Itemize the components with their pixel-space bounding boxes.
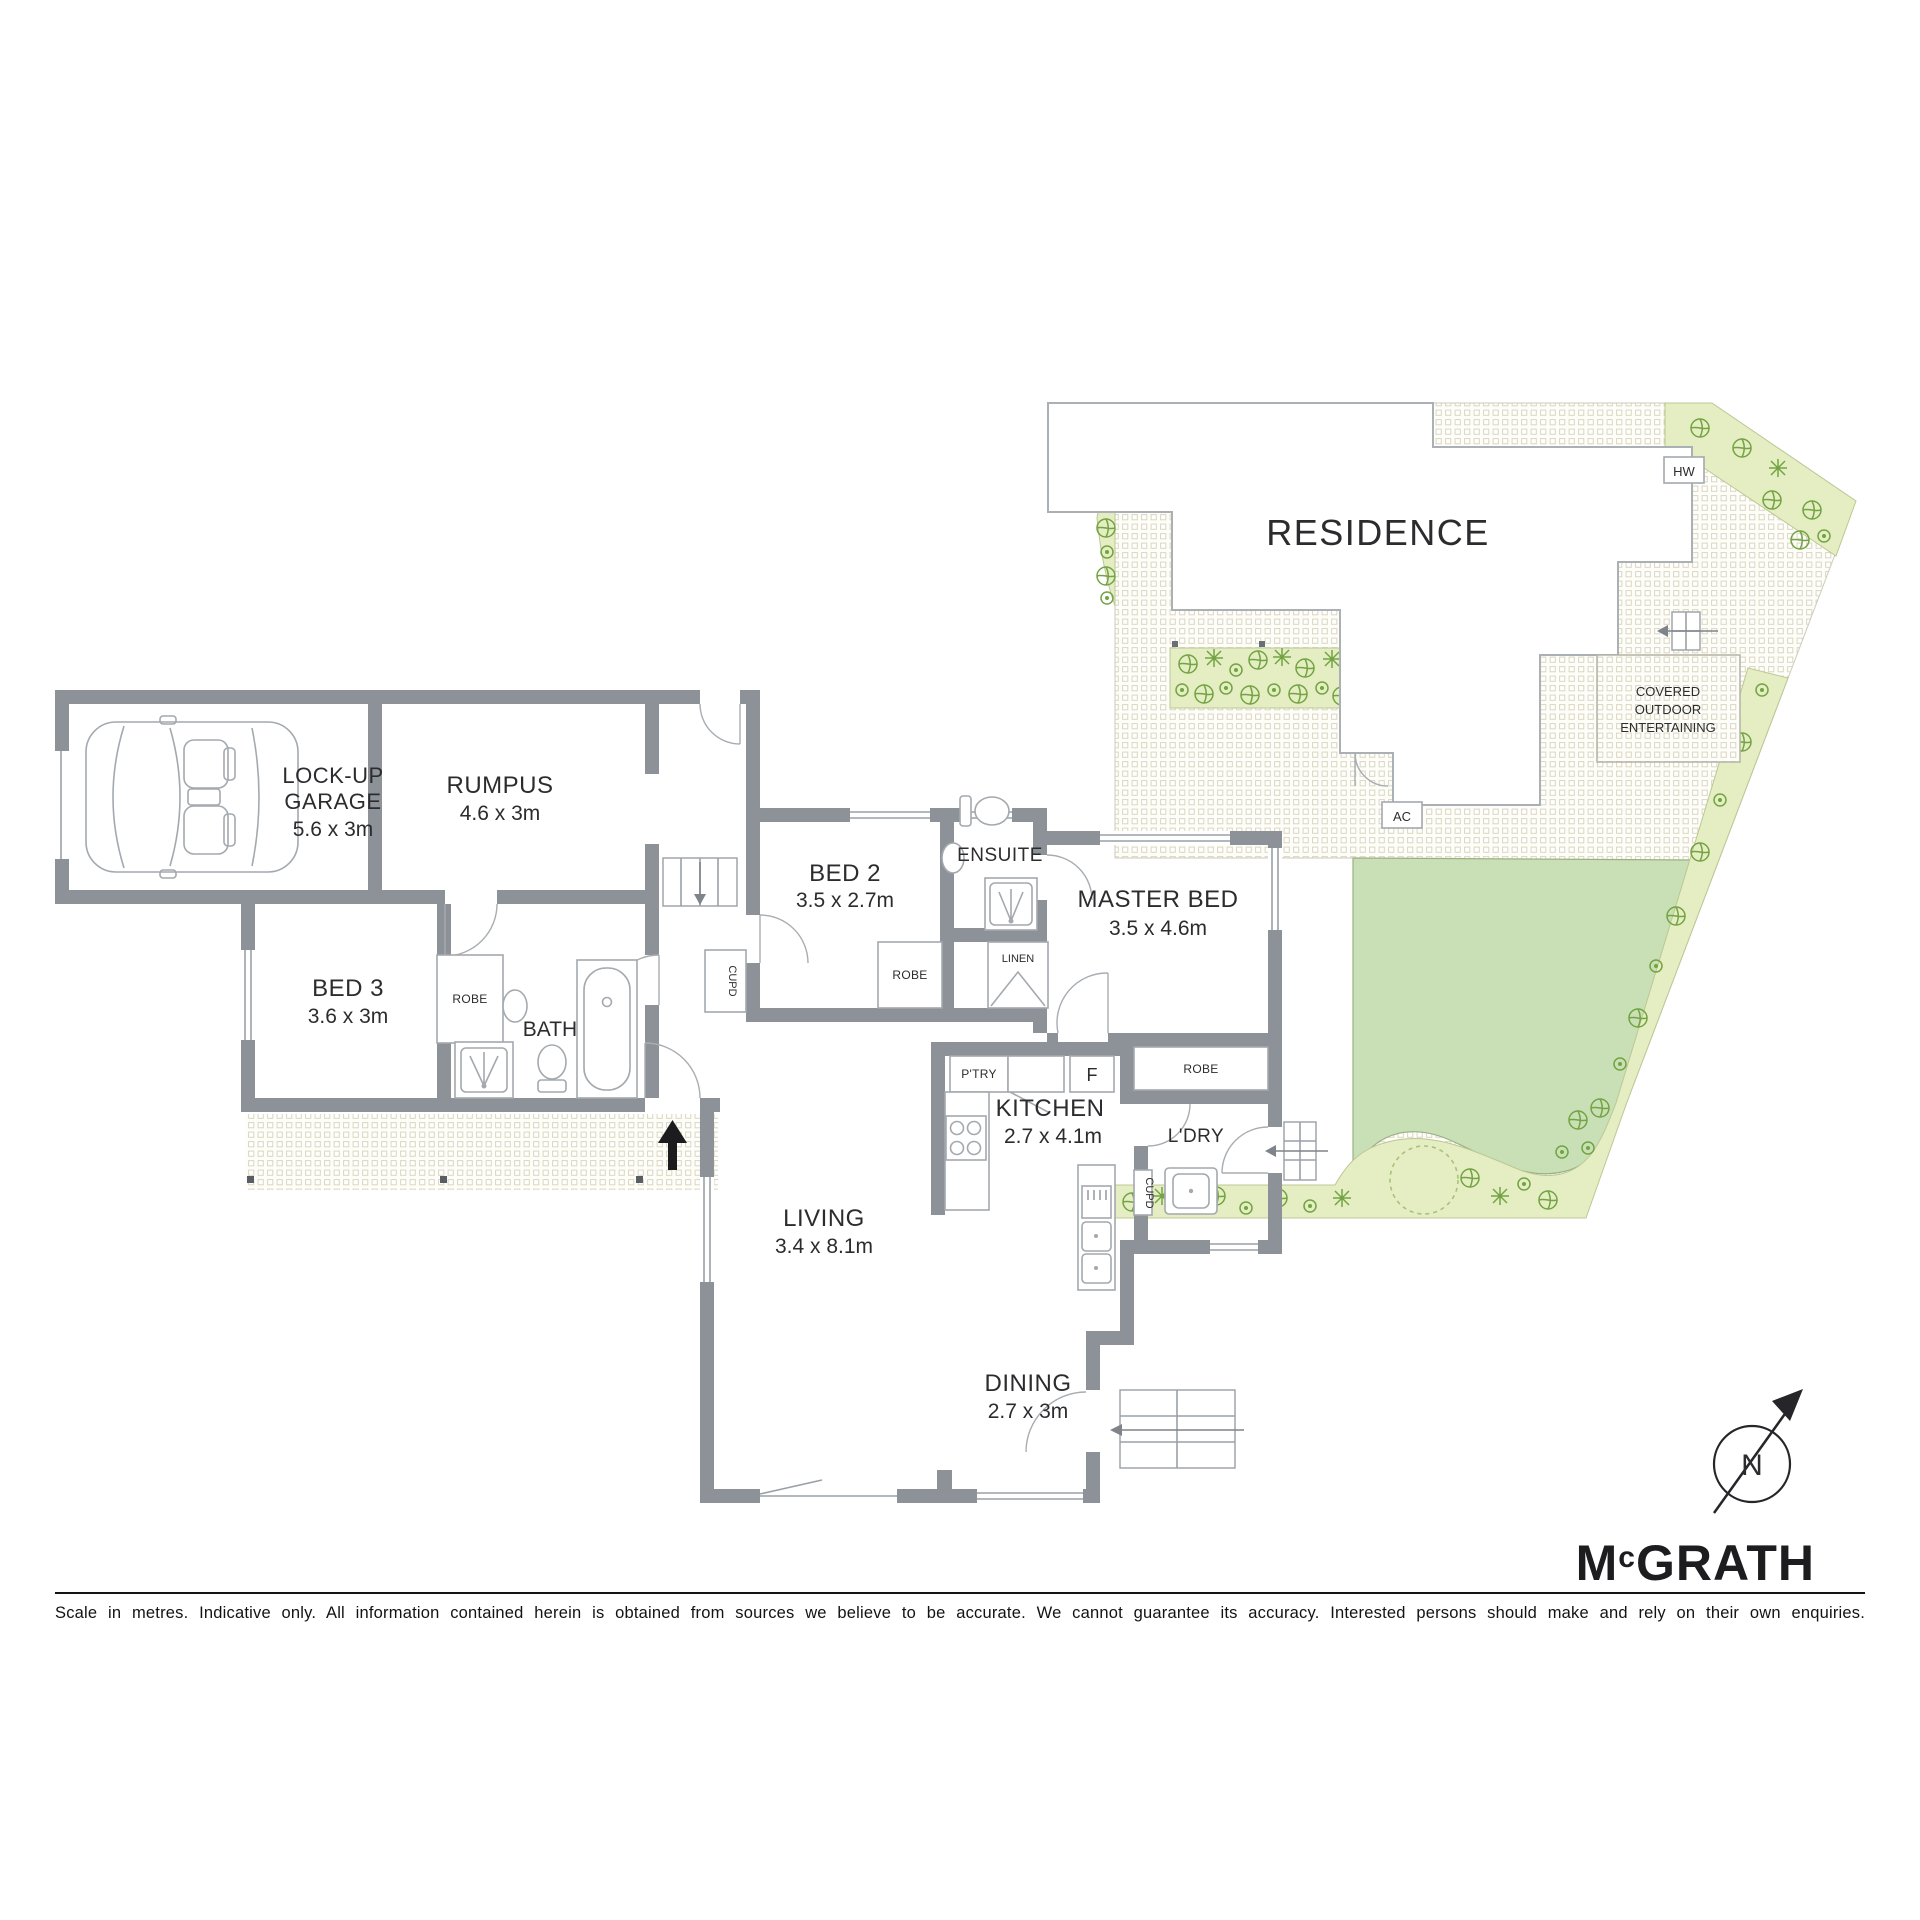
window	[700, 1177, 714, 1282]
room-labels: LOCK-UP GARAGE 5.6 x 3m RUMPUS 4.6 x 3m …	[282, 763, 1238, 1423]
hot-water-label: HW	[1673, 464, 1695, 479]
air-con-label: AC	[1393, 809, 1411, 824]
fence-post	[1259, 641, 1265, 647]
dining-steps	[1110, 1390, 1244, 1468]
toilet-icon	[538, 1045, 566, 1092]
door	[1222, 1127, 1268, 1173]
laundry-steps	[1265, 1122, 1328, 1180]
living-dims: 3.4 x 8.1m	[775, 1235, 873, 1258]
patio-post	[247, 1176, 254, 1183]
disclaimer-text: Scale in metres. Indicative only. All in…	[55, 1592, 1865, 1623]
floorplan-page: HW AC RESIDENCE COVERED OUTDOOR ENTERTAI…	[0, 0, 1920, 1920]
door	[760, 915, 808, 963]
patio-post	[440, 1176, 447, 1183]
window	[1268, 848, 1282, 930]
master-bed-label: MASTER BED	[1077, 886, 1238, 913]
window	[241, 950, 255, 1040]
dining-label: DINING	[985, 1370, 1072, 1397]
bench-cabinet	[1008, 1056, 1064, 1092]
logo-grath: GRATH	[1636, 1535, 1815, 1591]
bathtub-icon	[577, 960, 637, 1098]
kitchen-cupd-label: CUPD	[1143, 1177, 1155, 1208]
covered-outdoor-label-2: OUTDOOR	[1635, 702, 1701, 717]
patio-paving	[245, 1114, 718, 1190]
garage-label-1: LOCK-UP	[282, 763, 383, 788]
bed3-dims: 3.6 x 3m	[308, 1005, 389, 1028]
hall-cupd-label: CUPD	[726, 965, 738, 996]
kitchen-label: KITCHEN	[996, 1095, 1105, 1122]
window	[850, 808, 930, 822]
laundry-sink-icon	[1165, 1168, 1217, 1214]
pantry-label: P'TRY	[961, 1067, 997, 1081]
bed2-dims: 3.5 x 2.7m	[796, 889, 894, 912]
covered-outdoor-label-1: COVERED	[1636, 684, 1700, 699]
bed2-label: BED 2	[809, 860, 881, 887]
garage-dims: 5.6 x 3m	[293, 818, 374, 841]
logo-c: c	[1618, 1541, 1636, 1574]
bed2-robe-label: ROBE	[892, 968, 927, 982]
island-bench	[1078, 1165, 1115, 1290]
window	[977, 1489, 1083, 1503]
patio-post	[636, 1176, 643, 1183]
fridge-label: F	[1087, 1065, 1098, 1085]
logo-m: M	[1576, 1535, 1619, 1591]
car-icon	[86, 716, 298, 878]
hall-stairs	[663, 858, 737, 906]
laundry-label: L'DRY	[1168, 1126, 1224, 1147]
ensuite-label: ENSUITE	[957, 845, 1043, 866]
sliding-door	[760, 1480, 897, 1496]
door	[700, 704, 740, 744]
bed3-label: BED 3	[312, 975, 384, 1002]
bed3-robe-label: ROBE	[452, 992, 487, 1006]
mcgrath-logo: McGRATH	[1576, 1534, 1815, 1592]
garage-door	[55, 745, 69, 865]
master-bed-dims: 3.5 x 4.6m	[1109, 917, 1207, 940]
toilet-icon	[960, 796, 1009, 826]
stove-icon	[946, 1116, 986, 1160]
shower-icon	[455, 1042, 513, 1098]
hall-cupboard	[705, 950, 746, 1012]
window	[1210, 1240, 1258, 1254]
fence-post	[1172, 641, 1178, 647]
master-robe-label: ROBE	[1183, 1062, 1218, 1076]
rumpus-label: RUMPUS	[446, 772, 553, 799]
garage-label-2: GARAGE	[284, 789, 381, 814]
window	[1100, 831, 1230, 845]
rumpus-dims: 4.6 x 3m	[460, 802, 541, 825]
plan-drawing: HW AC RESIDENCE COVERED OUTDOOR ENTERTAI…	[0, 0, 1920, 1920]
shower-icon	[985, 878, 1037, 930]
linen-label: LINEN	[1002, 953, 1034, 965]
north-label: N	[1741, 1449, 1763, 1482]
living-label: LIVING	[783, 1205, 865, 1232]
dining-dims: 2.7 x 3m	[988, 1400, 1069, 1423]
door	[445, 904, 497, 956]
kitchen-dims: 2.7 x 4.1m	[1004, 1125, 1102, 1148]
north-arrow-icon: N	[1714, 1389, 1803, 1513]
residence-label: RESIDENCE	[1266, 512, 1490, 553]
covered-outdoor-label-3: ENTERTAINING	[1620, 720, 1716, 735]
door	[1057, 973, 1108, 1033]
bath-label: BATH	[523, 1018, 577, 1041]
